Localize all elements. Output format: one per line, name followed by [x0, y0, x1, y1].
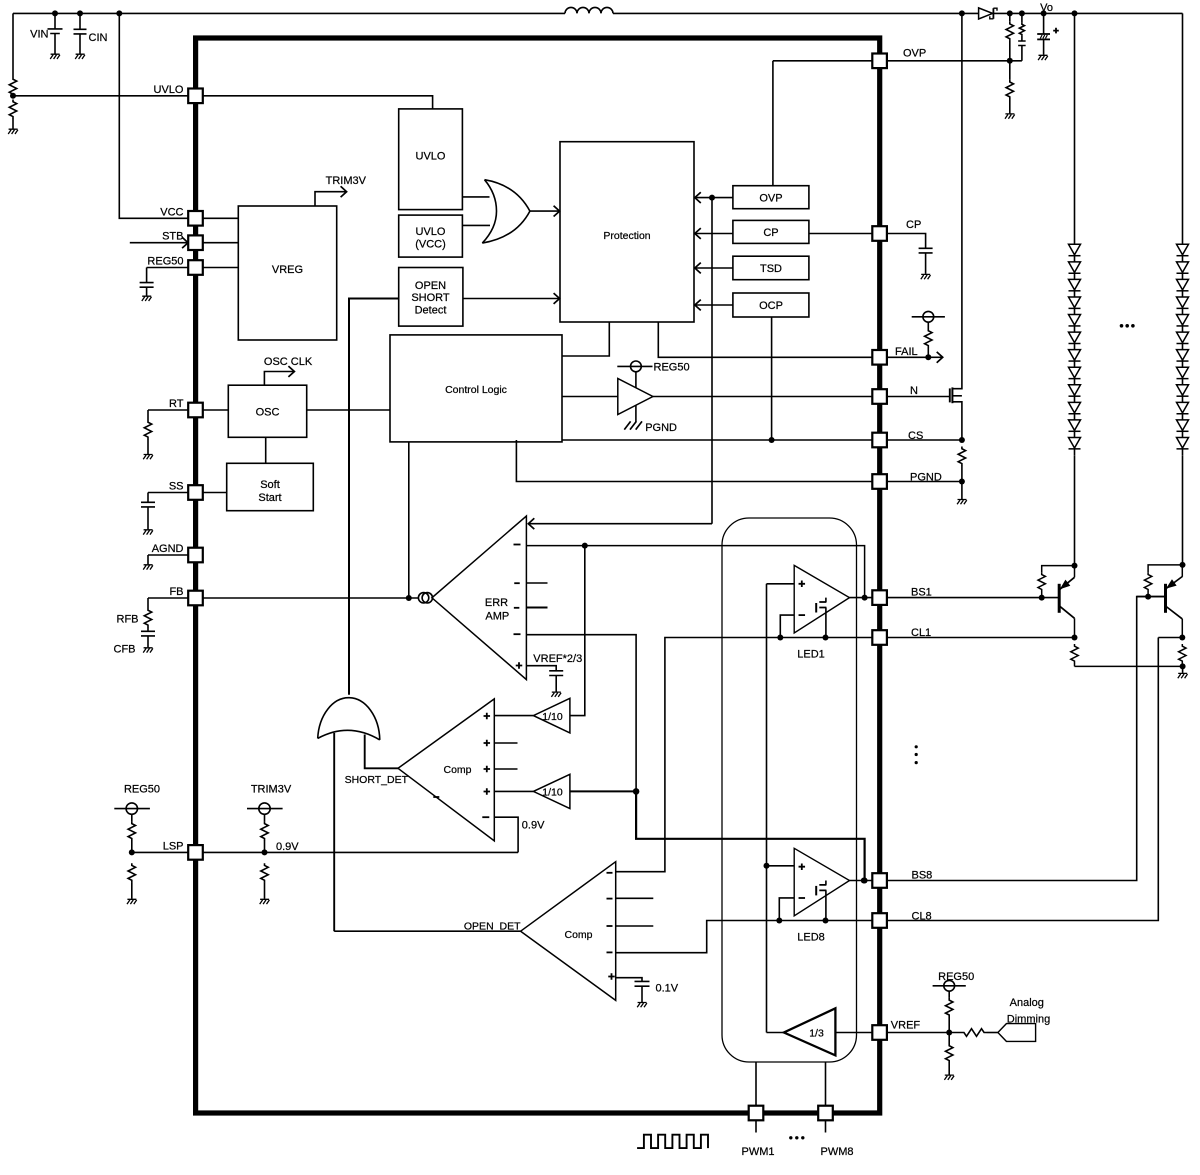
svg-text:PWM1: PWM1: [742, 1146, 775, 1158]
svg-text:SS: SS: [169, 481, 184, 493]
svg-text:Soft: Soft: [260, 479, 280, 491]
svg-text:Comp: Comp: [564, 929, 592, 941]
svg-text:STB: STB: [162, 231, 183, 243]
svg-text:FAIL: FAIL: [895, 346, 918, 358]
svg-text:OPEN: OPEN: [415, 280, 446, 292]
svg-text:BS1: BS1: [911, 587, 932, 599]
svg-text:CL8: CL8: [912, 911, 932, 923]
svg-text:REG50: REG50: [147, 256, 183, 268]
svg-text:ERR: ERR: [485, 597, 508, 609]
svg-text:FB: FB: [169, 586, 183, 598]
svg-text:Comp: Comp: [443, 764, 471, 776]
svg-text:LED1: LED1: [797, 649, 825, 661]
svg-text:N: N: [910, 385, 918, 397]
svg-text:LED8: LED8: [797, 931, 825, 943]
svg-text:Detect: Detect: [415, 305, 447, 317]
svg-text:(VCC): (VCC): [415, 239, 446, 251]
svg-text:Start: Start: [258, 492, 281, 504]
svg-text:TSD: TSD: [760, 263, 782, 275]
svg-text:OPEN_DET: OPEN_DET: [464, 920, 521, 932]
svg-text:Protection: Protection: [603, 230, 650, 242]
svg-text:VREF: VREF: [891, 1020, 921, 1032]
svg-text:TRIM3V: TRIM3V: [326, 175, 367, 187]
svg-text:CFB: CFB: [114, 644, 136, 656]
svg-text:0.9V: 0.9V: [276, 841, 299, 853]
svg-text:REG50: REG50: [938, 971, 974, 983]
svg-text:1/10: 1/10: [542, 711, 563, 723]
svg-text:OSC: OSC: [256, 407, 280, 419]
svg-text:BS8: BS8: [912, 870, 933, 882]
svg-text:PGND: PGND: [645, 422, 677, 434]
svg-text:REG50: REG50: [654, 361, 690, 373]
svg-text:OSC CLK: OSC CLK: [264, 356, 313, 368]
svg-text:CS: CS: [908, 430, 923, 442]
svg-text:Dimming: Dimming: [1007, 1013, 1050, 1025]
svg-text:UVLO: UVLO: [416, 226, 446, 238]
svg-text:CL1: CL1: [911, 627, 931, 639]
svg-text:PGND: PGND: [910, 471, 942, 483]
svg-text:OVP: OVP: [903, 47, 926, 59]
svg-text:REG50: REG50: [124, 783, 160, 795]
svg-text:UVLO: UVLO: [154, 84, 184, 96]
svg-text:LSP: LSP: [163, 840, 184, 852]
svg-text:VIN: VIN: [30, 29, 48, 41]
svg-text:VCC: VCC: [160, 206, 183, 218]
svg-text:VREF*2/3: VREF*2/3: [533, 653, 582, 665]
svg-text:Vo: Vo: [1040, 2, 1053, 14]
svg-text:SHORT_DET: SHORT_DET: [345, 774, 409, 786]
svg-text:Analog: Analog: [1010, 997, 1044, 1009]
svg-text:1/3: 1/3: [809, 1028, 824, 1040]
svg-text:SHORT: SHORT: [411, 292, 450, 304]
svg-text:0.1V: 0.1V: [656, 982, 679, 994]
svg-text:VREG: VREG: [272, 264, 303, 276]
svg-text:AGND: AGND: [152, 543, 184, 555]
svg-text:OCP: OCP: [759, 300, 783, 312]
svg-text:TRIM3V: TRIM3V: [251, 783, 292, 795]
svg-text:CP: CP: [906, 219, 921, 231]
svg-text:CP: CP: [763, 227, 778, 239]
svg-text:RT: RT: [169, 398, 184, 410]
svg-text:1/10: 1/10: [542, 787, 563, 799]
svg-text:AMP: AMP: [485, 611, 509, 623]
svg-text:PWM8: PWM8: [821, 1146, 854, 1158]
svg-text:Control Logic: Control Logic: [445, 384, 507, 396]
svg-text:0.9V: 0.9V: [522, 820, 545, 832]
svg-text:OVP: OVP: [759, 192, 782, 204]
svg-text:UVLO: UVLO: [416, 151, 446, 163]
svg-text:CIN: CIN: [89, 32, 108, 44]
svg-text:RFB: RFB: [117, 614, 139, 626]
